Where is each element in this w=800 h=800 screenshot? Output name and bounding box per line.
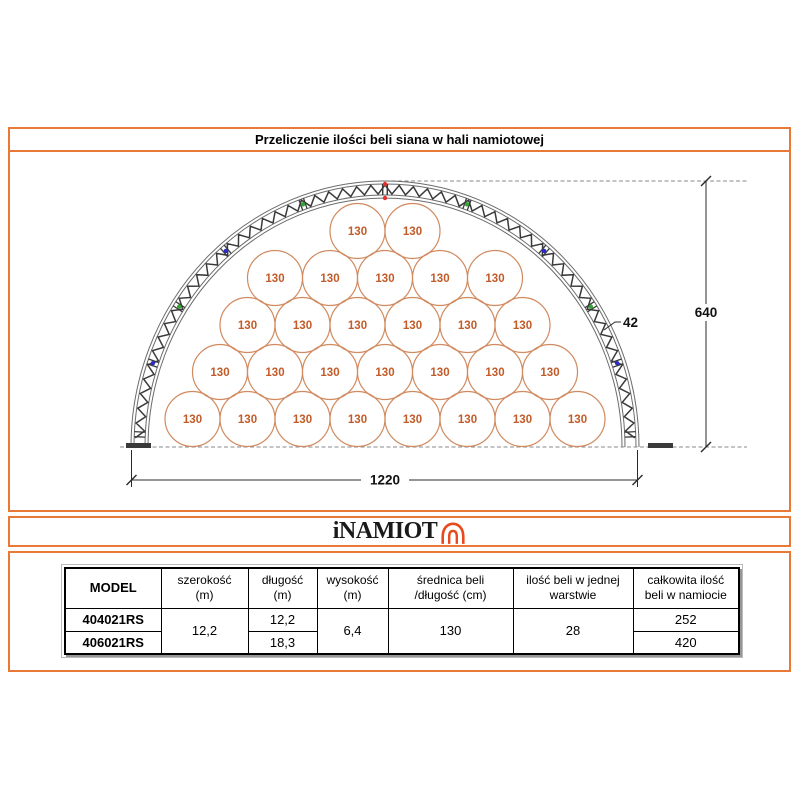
svg-text:130: 130 — [458, 414, 477, 426]
svg-text:130: 130 — [458, 320, 477, 332]
svg-text:130: 130 — [513, 414, 532, 426]
col-header-height: wysokość (m) — [317, 568, 388, 608]
svg-text:130: 130 — [265, 367, 284, 379]
logo-text: iNAMIOT — [333, 518, 438, 545]
page-title: Przeliczenie ilości beli siana w hali na… — [255, 132, 544, 147]
cell-bales-total-1: 252 — [633, 608, 739, 631]
svg-text:130: 130 — [348, 226, 367, 238]
svg-text:130: 130 — [430, 367, 449, 379]
col-header-length: długość (m) — [248, 568, 317, 608]
cell-width: 12,2 — [161, 608, 248, 654]
svg-text:130: 130 — [183, 414, 202, 426]
cell-model-2: 406021RS — [65, 631, 161, 654]
tent-icon — [440, 521, 466, 545]
header-line: (m) — [249, 588, 317, 604]
svg-text:42: 42 — [623, 315, 638, 330]
svg-text:130: 130 — [540, 367, 559, 379]
header-line: /długość (cm) — [389, 588, 513, 604]
cell-bales-per-layer: 28 — [513, 608, 633, 654]
header-line: ilość beli w jednej — [514, 573, 633, 589]
svg-text:130: 130 — [403, 414, 422, 426]
header-line: średnica beli — [389, 573, 513, 589]
cell-bales-total-2: 420 — [633, 631, 739, 654]
svg-text:130: 130 — [293, 320, 312, 332]
svg-text:130: 130 — [265, 273, 284, 285]
svg-text:1220: 1220 — [370, 473, 400, 488]
spec-table: MODEL szerokość (m) długość (m) wysokość… — [64, 567, 740, 655]
svg-text:130: 130 — [348, 320, 367, 332]
logo-bar: iNAMIOT — [8, 516, 791, 547]
svg-text:130: 130 — [210, 367, 229, 379]
svg-text:130: 130 — [238, 320, 257, 332]
svg-text:130: 130 — [375, 273, 394, 285]
cell-model-1: 404021RS — [65, 608, 161, 631]
svg-text:130: 130 — [238, 414, 257, 426]
table-panel: MODEL szerokość (m) długość (m) wysokość… — [8, 551, 791, 672]
header-line: wysokość — [318, 573, 388, 589]
tent-outer-arch — [443, 523, 464, 543]
svg-text:130: 130 — [293, 414, 312, 426]
svg-text:130: 130 — [348, 414, 367, 426]
header-line: szerokość — [162, 573, 248, 589]
svg-text:130: 130 — [320, 367, 339, 379]
diagram-panel: 1301301301301301301301301301301301301301… — [8, 150, 791, 512]
table-header-row: MODEL szerokość (m) długość (m) wysokość… — [65, 568, 739, 608]
table-row: 404021RS 12,2 12,2 6,4 130 28 252 — [65, 608, 739, 631]
svg-text:130: 130 — [485, 273, 504, 285]
header-line: beli w namiocie — [634, 588, 739, 604]
cell-length-1: 12,2 — [248, 608, 317, 631]
col-header-bale-diameter: średnica beli /długość (cm) — [388, 568, 513, 608]
header-line: (m) — [162, 588, 248, 604]
svg-text:130: 130 — [403, 226, 422, 238]
svg-text:640: 640 — [695, 305, 718, 320]
svg-text:130: 130 — [485, 367, 504, 379]
cell-height: 6,4 — [317, 608, 388, 654]
page: { "title": "Przeliczenie ilości beli sia… — [0, 0, 800, 800]
header-line: warstwie — [514, 588, 633, 604]
header-line: (m) — [318, 588, 388, 604]
svg-text:130: 130 — [403, 320, 422, 332]
col-header-model: MODEL — [65, 568, 161, 608]
dome-diagram: 1301301301301301301301301301301301301301… — [10, 152, 789, 510]
header-line: długość — [249, 573, 317, 589]
svg-text:130: 130 — [568, 414, 587, 426]
cell-length-2: 18,3 — [248, 631, 317, 654]
svg-text:130: 130 — [320, 273, 339, 285]
col-header-bales-total: całkowita ilość beli w namiocie — [633, 568, 739, 608]
cell-bale-diameter: 130 — [388, 608, 513, 654]
svg-text:130: 130 — [375, 367, 394, 379]
tent-door-arch — [449, 530, 457, 543]
svg-text:130: 130 — [513, 320, 532, 332]
header-line: całkowita ilość — [634, 573, 739, 589]
col-header-width: szerokość (m) — [161, 568, 248, 608]
title-bar: Przeliczenie ilości beli siana w hali na… — [8, 127, 791, 152]
svg-text:130: 130 — [430, 273, 449, 285]
col-header-bales-per-layer: ilość beli w jednej warstwie — [513, 568, 633, 608]
